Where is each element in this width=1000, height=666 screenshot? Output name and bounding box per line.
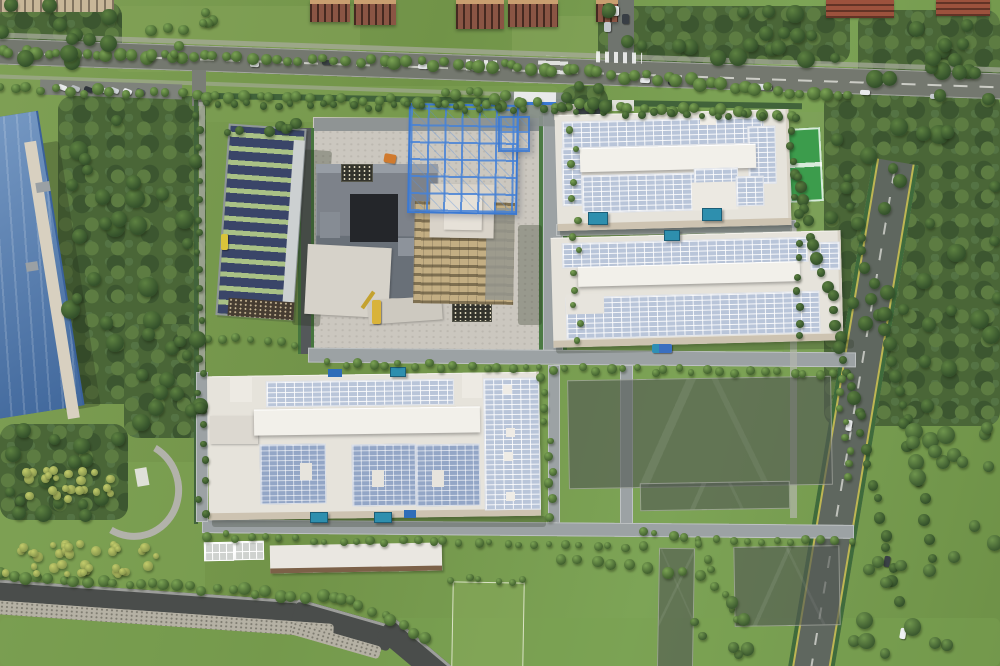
trees-gate-west: [441, 88, 450, 97]
hedge-campus-west: [195, 144, 202, 151]
office-box-2: [320, 212, 340, 238]
trees-gate-road-east: [577, 320, 584, 327]
trees-east-road-west-2: [881, 530, 893, 542]
trees-east-road-west-2: [874, 512, 885, 523]
trees-east-road-west: [817, 268, 825, 276]
trees-gate-road-east: [567, 160, 575, 168]
trees-mid-road: [746, 366, 755, 375]
trees-west-mid: [231, 333, 240, 342]
factory-a-panels-south-3: [736, 176, 765, 207]
shrubs-row-2: [80, 569, 87, 576]
trees-campus-east-lawn: [796, 303, 803, 310]
factory-c-panels-top: [266, 379, 454, 408]
hedge-campus-west: [195, 355, 202, 362]
trees-top-south-a: [20, 82, 30, 92]
blobs-forest-west-south: [153, 385, 168, 400]
trees-top-north-east: [773, 86, 783, 96]
blobs-forest-top-mid: [637, 40, 647, 50]
scatter-east-south: [906, 436, 920, 450]
trees-gate-road-east: [570, 270, 577, 277]
trees-top-north-east: [569, 64, 579, 74]
tower-crane-truck: [372, 300, 381, 324]
hedge-campus-north-w: [307, 102, 314, 109]
trees-east-road-west-2: [894, 596, 905, 607]
trees-south-curve: [353, 600, 364, 611]
factory-a-panels-south: [582, 173, 697, 214]
car-5: [640, 78, 650, 83]
scatter-pad-south: [738, 613, 750, 625]
trees-top-north-east: [795, 90, 804, 99]
trees-bottom-int-a: [475, 538, 484, 547]
trees-pad-mid: [710, 582, 718, 590]
trees-east-road-east-2: [928, 554, 937, 563]
blobs-forest-west: [156, 187, 169, 200]
scatter-southeast: [941, 639, 952, 650]
trees-east-road-east: [865, 293, 877, 305]
trees-east-road-west-2: [863, 460, 871, 468]
trees-pad-east: [841, 434, 849, 442]
carport: [270, 543, 442, 574]
hedge-campus-north-w: [260, 102, 267, 109]
hedge-campus-west: [202, 510, 210, 518]
trees-top-north-west: [176, 52, 188, 64]
trees-bottom-int-a: [575, 542, 581, 548]
trees-campus-east-lawn: [786, 142, 794, 150]
trees-bottom-int-a: [353, 538, 360, 545]
trees-south-road: [238, 582, 251, 595]
trees-bottom-int-a: [455, 539, 463, 547]
factory-c-box-blue: [404, 510, 416, 518]
trees-yard: [496, 578, 502, 584]
blobs-forest-top-left: [4, 0, 18, 12]
hedge-campus-west: [196, 285, 203, 292]
factory-c-panels-s1: [260, 444, 327, 505]
blobs-forest-top-right: [938, 38, 952, 52]
shrubs-row-4: [93, 488, 101, 496]
blue-building-unit-2: [25, 261, 38, 272]
scatter-top-left: [163, 23, 172, 32]
trees-top-south-a: [80, 90, 88, 98]
pad-main-ext: [640, 481, 790, 512]
trees-top-south-a: [161, 88, 170, 97]
blobs-forest-west: [87, 272, 101, 286]
scatter-southeast: [856, 612, 873, 629]
blobs-forest-west-south: [136, 369, 147, 380]
trees-pad-mid: [707, 566, 714, 573]
trees-west-mid: [264, 337, 272, 345]
blobs-forest-top-mid: [602, 3, 616, 17]
trees-south-curve: [419, 632, 431, 644]
scatter-southeast: [880, 577, 891, 588]
trees-pad-west: [545, 513, 554, 522]
trees-top-south-a: [122, 90, 130, 98]
trees-south-road: [229, 585, 238, 594]
trees-bottom-int-a: [561, 540, 570, 549]
trees-mid-road: [816, 370, 825, 379]
trees-campus-east-lawn: [794, 173, 802, 181]
trees-east-road-west: [839, 356, 847, 364]
trees-top-north-west: [3, 48, 13, 58]
shrubs-row-2: [33, 570, 40, 577]
hedge-campus-north-w: [540, 105, 547, 112]
shrubs-row-3: [45, 472, 52, 479]
blobs-forest-east: [922, 317, 936, 331]
trees-top-north-west: [439, 57, 448, 66]
trees-south-road: [157, 579, 169, 591]
blobs-gate-east: [557, 102, 566, 111]
pad-south-small: [657, 548, 695, 666]
factory-c-box-nw: [230, 376, 252, 402]
hedge-campus-north-e: [638, 111, 646, 119]
factory-c-east-sq-4: [506, 492, 515, 501]
trees-bottom-int-a: [486, 539, 492, 545]
hedge-campus-north-w: [215, 101, 221, 107]
trees-bottom-int-b: [651, 530, 657, 536]
trees-campus-east-lawn: [791, 194, 797, 200]
blobs-forest-west: [189, 154, 202, 167]
factory-c-strip: [254, 406, 480, 435]
scatter-pad-south: [726, 596, 738, 608]
trees-bottom-int-b: [744, 538, 751, 545]
trees-mid-road: [688, 369, 694, 375]
trees-bottom-int-a: [530, 541, 538, 549]
scatter-top-left: [170, 50, 178, 58]
trees-campus-east-lawn: [790, 158, 796, 164]
trees-top-north-west: [83, 49, 93, 59]
trees-east-road-west-2: [868, 480, 879, 491]
blobs-forest-top-left: [17, 50, 34, 67]
trees-campus-east-lawn: [794, 222, 800, 228]
factory-c-panels-s2: [352, 444, 417, 507]
trees-bottom-int-b: [787, 539, 794, 546]
hedge-campus-west: [196, 196, 203, 203]
trees-pad-mid: [704, 555, 713, 564]
hedge-campus-west: [197, 304, 203, 310]
trees-top-north-west: [247, 53, 259, 65]
trees-top-north-west: [418, 56, 426, 64]
trees-gate-road-east: [574, 217, 581, 224]
blobs-forest-west: [143, 311, 161, 329]
office-vent: [341, 164, 373, 182]
trees-bottom-int-b: [680, 533, 688, 541]
trees-top-south-a: [92, 83, 104, 95]
factory-b-hvac: [664, 230, 680, 241]
hedge-campus-north-e: [650, 108, 658, 116]
trees-top-north-west: [400, 55, 412, 67]
trees-bottom-int-a: [430, 537, 439, 546]
trees-east-road-east: [869, 278, 880, 289]
trees-gate-road-east: [570, 179, 577, 186]
trees-top-north-west: [207, 51, 216, 60]
hedge-campus-north-w: [419, 102, 426, 109]
hedge-campus-north-w: [453, 103, 459, 109]
trees-bottom-int-a: [262, 533, 269, 540]
blobs-forest-west: [111, 211, 127, 227]
trees-pad-west: [540, 418, 547, 425]
blobs-forest-top-mid: [672, 39, 686, 53]
trees-south-fence: [624, 559, 635, 570]
trees-gate-road-east: [573, 146, 579, 152]
hedge-campus-north-w: [375, 104, 382, 111]
trees-mid-road: [591, 367, 600, 376]
construction-lattice-arm: [498, 116, 530, 152]
blobs-forest-top-left: [100, 35, 117, 52]
hedge-campus-north-e: [776, 113, 783, 120]
trees-bottom-int-b: [713, 535, 720, 542]
trees-south-fence: [642, 562, 654, 574]
blobs-forest-east: [946, 305, 957, 316]
trees-bottom-int-a: [365, 536, 374, 545]
scene-layer: [0, 0, 1000, 666]
blobs-forest-top-left: [101, 9, 116, 24]
trees-bottom-int-a: [438, 536, 447, 545]
hedge-campus-west: [192, 112, 199, 119]
blobs-forest-top-right: [909, 21, 925, 37]
trees-top-north-east: [820, 88, 833, 101]
trees-bottom-int-b: [669, 531, 679, 541]
crosswalk-north: [596, 51, 642, 64]
blobs-forest-east: [878, 202, 891, 215]
factory-c-roof-west: [210, 416, 258, 444]
trees-mid-road: [509, 364, 518, 373]
parking-grid-1: [204, 542, 234, 562]
trees-mid-road: [579, 363, 587, 371]
trees-east-road-west-2: [874, 494, 882, 502]
blobs-forest-west-south: [132, 414, 149, 431]
blobs-forest-southwest: [5, 487, 15, 497]
trees-pad-east: [838, 375, 846, 383]
trees-south-fence: [572, 555, 582, 565]
factory-c-east-sq-1: [503, 385, 512, 394]
factory-c-box-ne: [462, 374, 482, 398]
blobs-forest-southwest: [73, 438, 90, 455]
trees-east-road-east: [857, 234, 865, 242]
trees-south-road: [171, 579, 183, 591]
car-connector-3: [604, 22, 611, 32]
blobs-forest-top-mid: [710, 50, 726, 66]
aerial-campus-rendering: [0, 0, 1000, 666]
shrubs-row-2: [143, 561, 153, 571]
blobs-forest-west: [100, 316, 113, 329]
blobs-forest-west: [111, 115, 122, 126]
blobs-forest-east: [941, 125, 954, 138]
trees-east-road-west-2: [861, 444, 872, 455]
scatter-east-south: [908, 454, 924, 470]
trees-south-road: [285, 591, 296, 602]
scatter-southeast: [904, 618, 922, 636]
shrubs-row-3: [106, 475, 114, 483]
trees-bottom-int-a: [275, 534, 282, 541]
trees-south-fence: [556, 554, 567, 565]
factory-c-panels-east: [483, 378, 541, 511]
factory-a-roof-white: [692, 181, 739, 210]
blobs-forest-east: [877, 307, 892, 322]
trees-mid-road: [437, 364, 445, 372]
trees-yard: [466, 574, 473, 581]
factory-c-gap-2: [372, 470, 384, 487]
blobs-forest-southwest: [111, 432, 125, 446]
shrubs-row-1: [64, 543, 72, 551]
trees-south-road: [213, 584, 221, 592]
trees-top-north-east: [546, 66, 556, 76]
trees-top-north-east: [629, 70, 640, 81]
trees-south-curve: [408, 628, 419, 639]
blobs-forest-east: [831, 133, 844, 146]
trees-top-north-east: [834, 91, 843, 100]
trees-pad-west: [540, 404, 548, 412]
blobs-forest-west: [129, 216, 147, 234]
hedge-campus-north-w: [330, 101, 337, 108]
factory-a-hvac-2: [702, 208, 722, 221]
trees-west-mid: [291, 342, 298, 349]
trees-mid-road: [523, 364, 529, 370]
blobs-forest-east: [982, 326, 1000, 344]
trees-bottom-int-b: [801, 535, 810, 544]
trees-top-north-west: [387, 56, 401, 70]
scatter-top-left: [201, 8, 210, 17]
trees-top-north-west: [340, 56, 350, 66]
trees-bottom-int-a: [202, 532, 212, 542]
blobs-forest-top-mid: [743, 38, 758, 53]
trees-bottom-int-a: [594, 542, 603, 551]
apartment-6: [826, 0, 894, 18]
scatter-east-south: [983, 461, 994, 472]
trees-top-south-b: [264, 92, 273, 101]
trees-top-north-west: [222, 52, 231, 61]
hedge-campus-north-w: [287, 100, 294, 107]
trees-west-mid: [277, 337, 286, 346]
trees-east-road-east-2: [920, 493, 931, 504]
trees-mid-road: [536, 364, 542, 370]
trees-mid-road: [659, 365, 668, 374]
trees-west-mid: [247, 336, 254, 343]
blobs-forest-west: [95, 189, 111, 205]
factory-c-gap-1: [300, 463, 312, 480]
hedge-campus-west: [202, 456, 210, 464]
blobs-forest-west-south: [182, 350, 192, 360]
blobs-forest-top-mid: [759, 26, 774, 41]
blobs-forest-east: [970, 310, 989, 329]
trees-south-road: [108, 579, 116, 587]
trees-campus-east-lawn: [796, 254, 803, 261]
trees-bottom-int-a: [248, 533, 256, 541]
trees-top-north-west: [453, 59, 463, 69]
scatter-east-south: [969, 520, 980, 531]
factory-c-hvac-s2: [374, 512, 392, 523]
scatter-pad-south: [690, 618, 698, 626]
blobs-forest-southwest: [5, 446, 21, 462]
trees-top-north-east: [843, 91, 852, 100]
hedge-campus-north-e: [792, 114, 800, 122]
blobs-forest-east: [989, 181, 1000, 192]
trees-gate-road-east: [570, 302, 576, 308]
trees-east-road-west: [795, 181, 807, 193]
factory-c-east-sq-3: [504, 452, 513, 461]
trees-top-south-b: [211, 91, 219, 99]
shrubs-row-1: [19, 543, 28, 552]
trees-mid-road: [394, 360, 400, 366]
trees-top-south-c: [689, 103, 699, 113]
scatter-east-south: [937, 426, 955, 444]
blobs-forest-east: [941, 360, 958, 377]
hedge-campus-north-e: [573, 109, 579, 115]
scatter-top-left: [145, 25, 156, 36]
trees-mid-road: [370, 360, 379, 369]
scatter-pad-south: [728, 642, 738, 652]
shadow-tower: [518, 225, 542, 325]
trees-south-road: [317, 589, 330, 602]
trees-west-mid: [218, 335, 226, 343]
scatter-southeast: [858, 633, 874, 649]
trees-south-fence: [605, 559, 616, 570]
trees-top-south-a: [65, 87, 75, 97]
scatter-east-south: [957, 456, 969, 468]
trees-mid-road: [411, 363, 419, 371]
trees-pad-east: [844, 473, 852, 481]
hedge-campus-north-e: [622, 111, 629, 118]
trees-south-road: [19, 572, 32, 585]
blobs-forest-east: [982, 93, 994, 105]
blobs-gate-east: [587, 97, 600, 110]
factory-c-panels-s3: [416, 444, 481, 507]
trees-gate-road-east: [574, 337, 580, 343]
trees-top-north-east: [807, 87, 821, 101]
apartment-3: [456, 0, 504, 29]
trees-east-road-west-2: [856, 429, 864, 437]
trees-east-road-east: [859, 262, 871, 274]
trees-top-north-west: [272, 55, 282, 65]
hedge-campus-north-w: [350, 101, 358, 109]
trees-mid-road: [676, 364, 683, 371]
hedge-campus-north-w: [462, 107, 468, 113]
shrubs-row-1: [140, 543, 149, 552]
trees-gate-road-east: [569, 233, 577, 241]
trees-mid-road: [619, 365, 626, 372]
blobs-forest-top-right: [969, 67, 981, 79]
trees-mid-road: [380, 362, 388, 370]
trees-bottom-int-a: [621, 544, 630, 553]
blobs-forest-west-south: [194, 402, 206, 414]
trees-south-road: [196, 586, 206, 596]
blobs-forest-east: [824, 211, 837, 224]
scatter-southeast: [923, 564, 936, 577]
blobs-forest-east: [880, 285, 895, 300]
trees-mid-road: [634, 364, 641, 371]
trees-south-curve: [367, 607, 377, 617]
trees-top-north-east: [525, 63, 538, 76]
trees-campus-east-lawn: [793, 287, 800, 294]
trees-bottom-int-a: [546, 541, 552, 547]
blobs-forest-top-right: [957, 38, 969, 50]
hedge-campus-north-w: [476, 106, 483, 113]
trees-mid-road: [468, 362, 477, 371]
bus-west-road: [221, 234, 228, 250]
trees-campus-east-lawn: [794, 209, 804, 219]
blobs-forest-southwest: [68, 455, 81, 468]
trees-east-road-east: [889, 370, 902, 383]
trees-pad-west: [541, 389, 548, 396]
trees-mid-road: [353, 358, 362, 367]
trees-top-north-west: [318, 54, 327, 63]
car-7: [860, 90, 870, 95]
trees-east-road-west-2: [881, 543, 890, 552]
trees-south-road: [148, 578, 158, 588]
blobs-forest-top-left: [60, 45, 77, 62]
factory-c-hvac-n2: [390, 367, 406, 377]
car-connector-2: [622, 14, 629, 24]
blobs-forest-southwest: [16, 423, 31, 438]
blobs-forest-east: [888, 163, 898, 173]
